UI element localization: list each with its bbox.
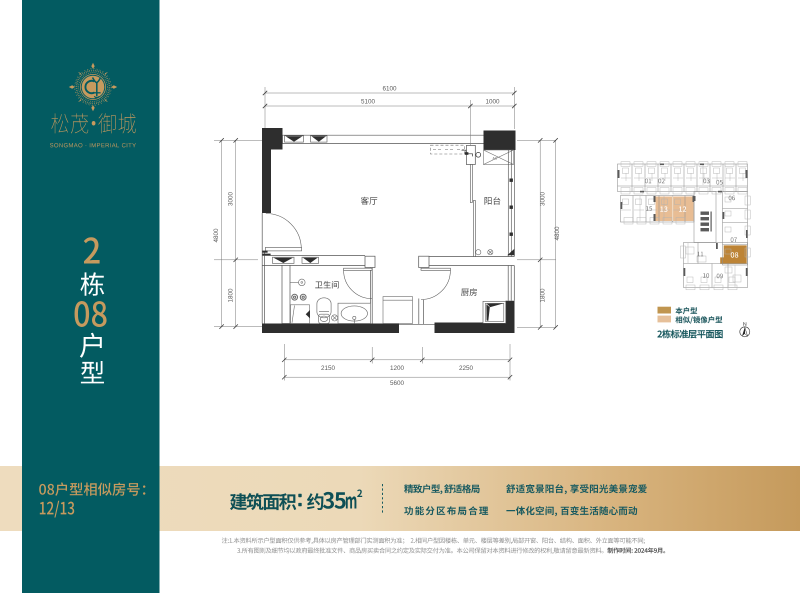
- svg-text:1800: 1800: [540, 288, 547, 303]
- svg-text:5100: 5100: [361, 99, 376, 106]
- svg-text:4800: 4800: [554, 226, 561, 241]
- svg-text:1200: 1200: [390, 365, 405, 372]
- svg-text:1800: 1800: [227, 288, 234, 303]
- svg-text:1000: 1000: [485, 99, 500, 106]
- svg-text:AC: AC: [493, 156, 498, 160]
- svg-text:2150: 2150: [321, 365, 336, 372]
- svg-text:5600: 5600: [390, 380, 405, 387]
- svg-text:3000: 3000: [227, 192, 234, 207]
- svg-text:3000: 3000: [540, 192, 547, 207]
- svg-text:6100: 6100: [382, 86, 397, 93]
- svg-text:4800: 4800: [213, 228, 220, 243]
- svg-text:2250: 2250: [459, 365, 474, 372]
